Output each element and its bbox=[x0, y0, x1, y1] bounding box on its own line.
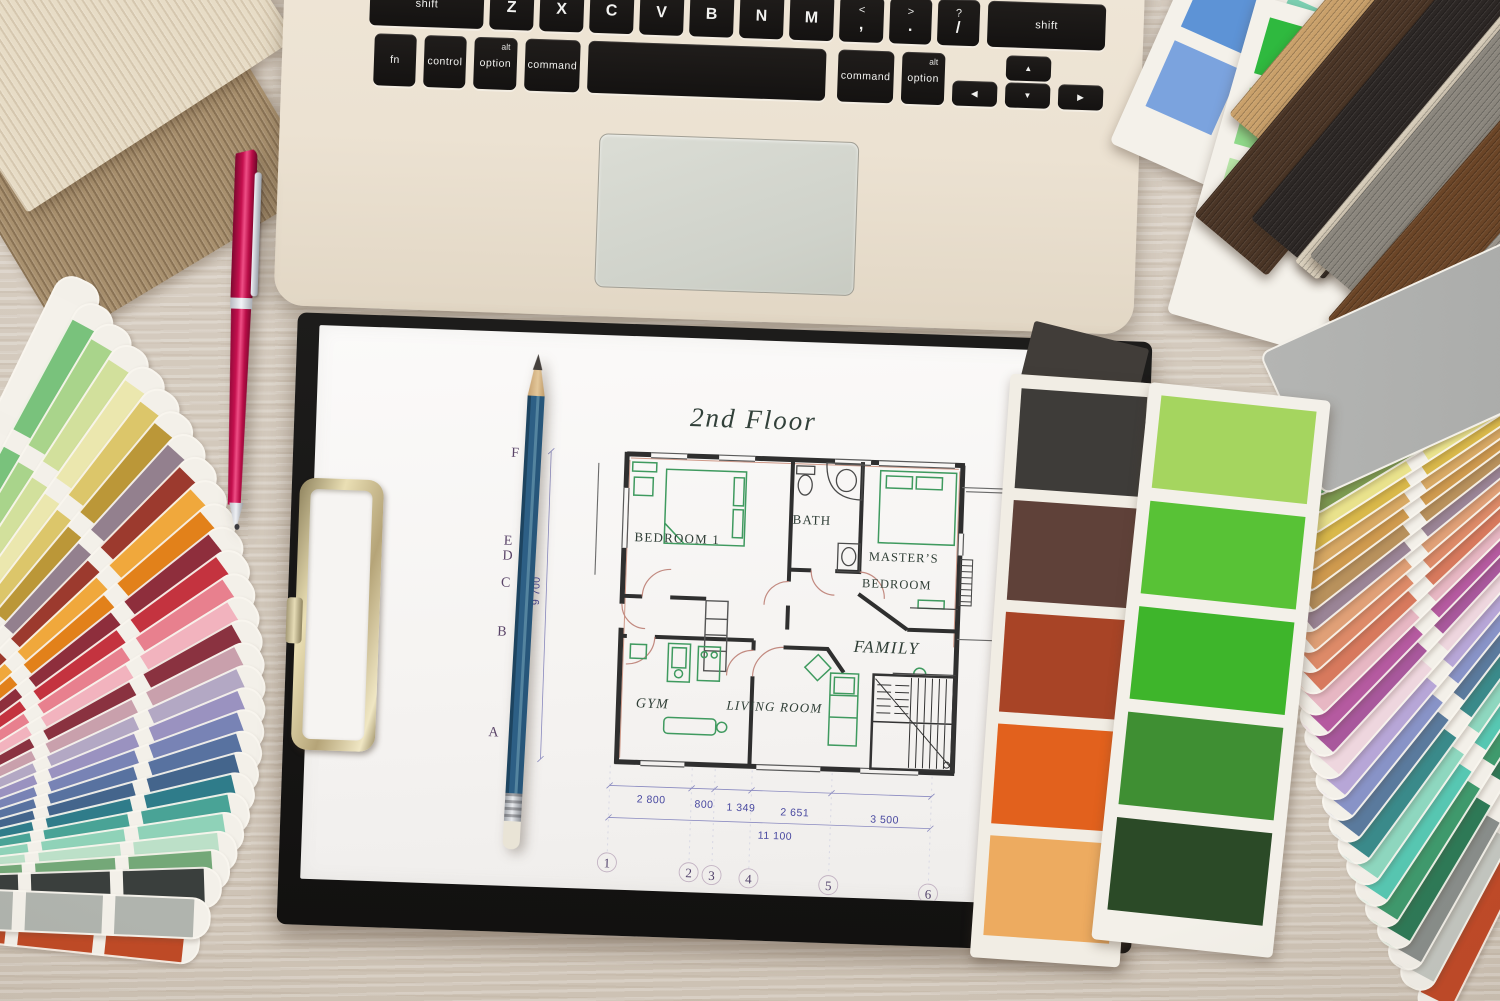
key-space bbox=[587, 41, 827, 101]
grid-letter-c: C bbox=[501, 576, 511, 591]
closet-shelves bbox=[704, 601, 728, 672]
key-control: control bbox=[423, 35, 467, 88]
interior-walls bbox=[614, 454, 963, 774]
pen-body bbox=[224, 308, 251, 505]
room-label-family: FAMILY bbox=[852, 637, 920, 658]
staircase bbox=[870, 675, 955, 772]
key-b: B bbox=[689, 0, 735, 38]
key-shift-left: shift bbox=[369, 0, 485, 29]
clipboard-clip-lever bbox=[285, 597, 303, 644]
key-command-right: command bbox=[837, 49, 895, 103]
grid-bubbles bbox=[596, 853, 938, 904]
terrace-outline bbox=[593, 463, 1012, 641]
pen-ballpoint bbox=[234, 524, 239, 530]
paint-swatch bbox=[1152, 395, 1317, 504]
room-label-bath: BATH bbox=[792, 512, 831, 528]
grid-letter-e: E bbox=[504, 534, 513, 549]
room-label-bedroom1: BEDROOM 1 bbox=[634, 529, 720, 547]
key-shift-right: shift bbox=[987, 1, 1107, 51]
key-option-left: altoption bbox=[473, 37, 518, 90]
pen-tip bbox=[229, 503, 244, 525]
paint-swatch bbox=[1118, 712, 1283, 821]
grid-number-2: 2 bbox=[685, 865, 692, 880]
key-v: V bbox=[639, 0, 685, 36]
pencil-ferrule bbox=[504, 793, 523, 822]
pencil-lead-tip bbox=[529, 354, 547, 371]
key-arrow-up: ▲ bbox=[1006, 55, 1052, 82]
key-period: >. bbox=[889, 0, 933, 45]
trackpad bbox=[594, 133, 859, 296]
room-label-living: LIVING ROOM bbox=[725, 697, 822, 715]
grid-number-5: 5 bbox=[825, 878, 832, 893]
dim-2: 800 bbox=[694, 798, 713, 811]
grid-letter-d: D bbox=[502, 549, 513, 564]
dim-total: 11 100 bbox=[758, 830, 793, 843]
floor-plan-title: 2nd Floor bbox=[690, 402, 818, 436]
key-x: X bbox=[539, 0, 585, 33]
clipboard-clip-opening bbox=[302, 489, 373, 741]
pencil-eraser bbox=[502, 821, 521, 850]
key-arrow-down: ▼ bbox=[1005, 82, 1051, 109]
key-z: Z bbox=[489, 0, 535, 31]
dim-5: 3 500 bbox=[870, 814, 899, 827]
paint-swatch bbox=[1107, 817, 1272, 926]
paint-swatch bbox=[1007, 500, 1140, 609]
grid-number-1: 1 bbox=[603, 855, 610, 870]
room-label-master-1: MASTER’S bbox=[869, 549, 939, 565]
key-comma: <, bbox=[839, 0, 885, 43]
arrow-down-icon: ▼ bbox=[1023, 91, 1032, 100]
key-option-right: altoption bbox=[901, 52, 946, 105]
grid-number-4: 4 bbox=[745, 871, 753, 886]
key-command-left: command bbox=[524, 39, 581, 93]
key-arrow-right: ▶ bbox=[1058, 84, 1104, 111]
key-slash: ?/ bbox=[937, 0, 981, 46]
clipboard-clip bbox=[291, 477, 384, 752]
paint-swatch bbox=[1130, 606, 1295, 715]
dim-1: 2 800 bbox=[637, 793, 666, 806]
paint-swatch bbox=[1015, 388, 1148, 497]
room-label-gym: GYM bbox=[636, 696, 670, 712]
arrow-left-icon: ◀ bbox=[971, 89, 978, 98]
dim-3: 1 349 bbox=[726, 802, 755, 815]
key-fn: fn bbox=[373, 33, 417, 86]
pen-band bbox=[230, 297, 252, 309]
designer-desk-scene: shift Z X C V B N M <, >. ?/ shift fn co… bbox=[0, 0, 1500, 1001]
grid-letter-b: B bbox=[497, 624, 507, 639]
key-arrow-left: ◀ bbox=[952, 80, 998, 107]
grid-letter-a: A bbox=[488, 725, 500, 740]
key-n: N bbox=[739, 0, 785, 39]
dim-4: 2 651 bbox=[780, 806, 809, 819]
grid-letter-f: F bbox=[511, 446, 520, 461]
pencil-sharpened-wood bbox=[528, 370, 546, 397]
door-arcs bbox=[620, 564, 886, 681]
paint-swatch bbox=[999, 612, 1132, 721]
arrow-up-icon: ▲ bbox=[1024, 64, 1033, 73]
key-m: M bbox=[789, 0, 835, 41]
arrow-right-icon: ▶ bbox=[1077, 93, 1084, 102]
laptop: shift Z X C V B N M <, >. ?/ shift fn co… bbox=[273, 0, 1146, 335]
key-c: C bbox=[589, 0, 635, 34]
grid-number-6: 6 bbox=[925, 887, 933, 902]
paint-swatch bbox=[1141, 501, 1306, 610]
grid-number-3: 3 bbox=[708, 868, 715, 883]
room-label-master-2: BEDROOM bbox=[862, 576, 932, 592]
